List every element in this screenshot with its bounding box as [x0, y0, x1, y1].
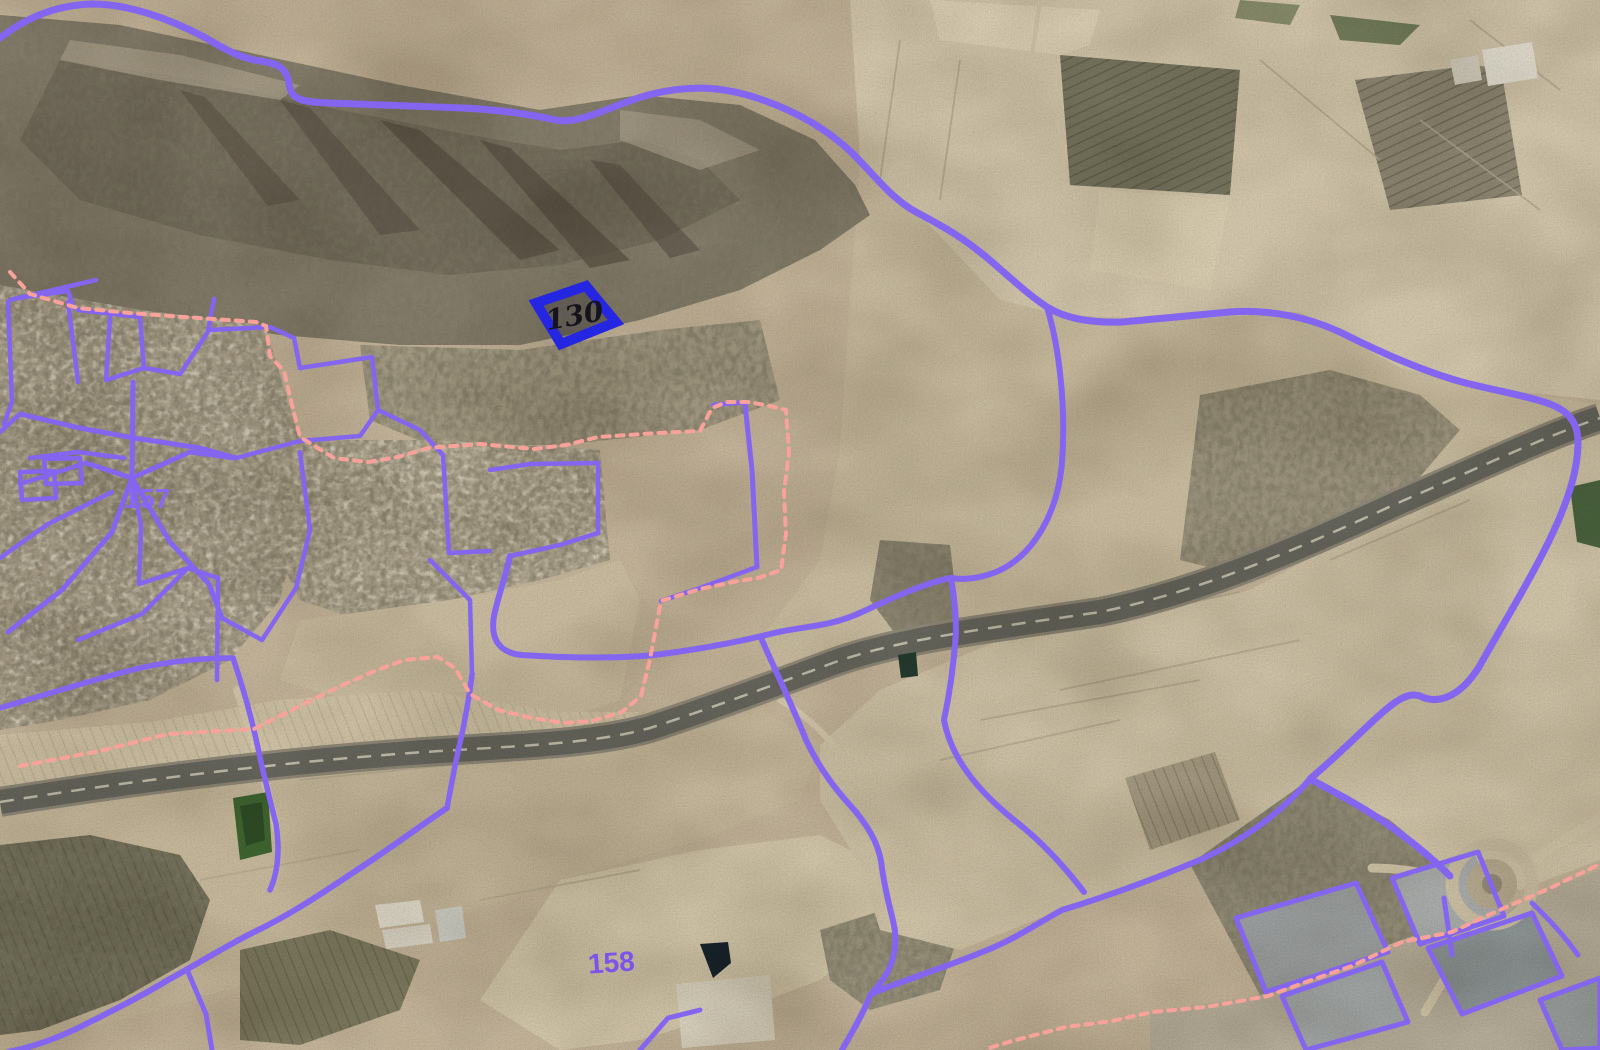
zone-label-158: 158 [587, 945, 636, 979]
village-street [217, 578, 218, 680]
aerial-map-svg: 157 130 158 [0, 0, 1600, 1050]
zone-labels-layer: 158 [587, 945, 636, 979]
village-street [132, 382, 133, 478]
map-canvas[interactable]: 157 130 158 [0, 0, 1600, 1050]
